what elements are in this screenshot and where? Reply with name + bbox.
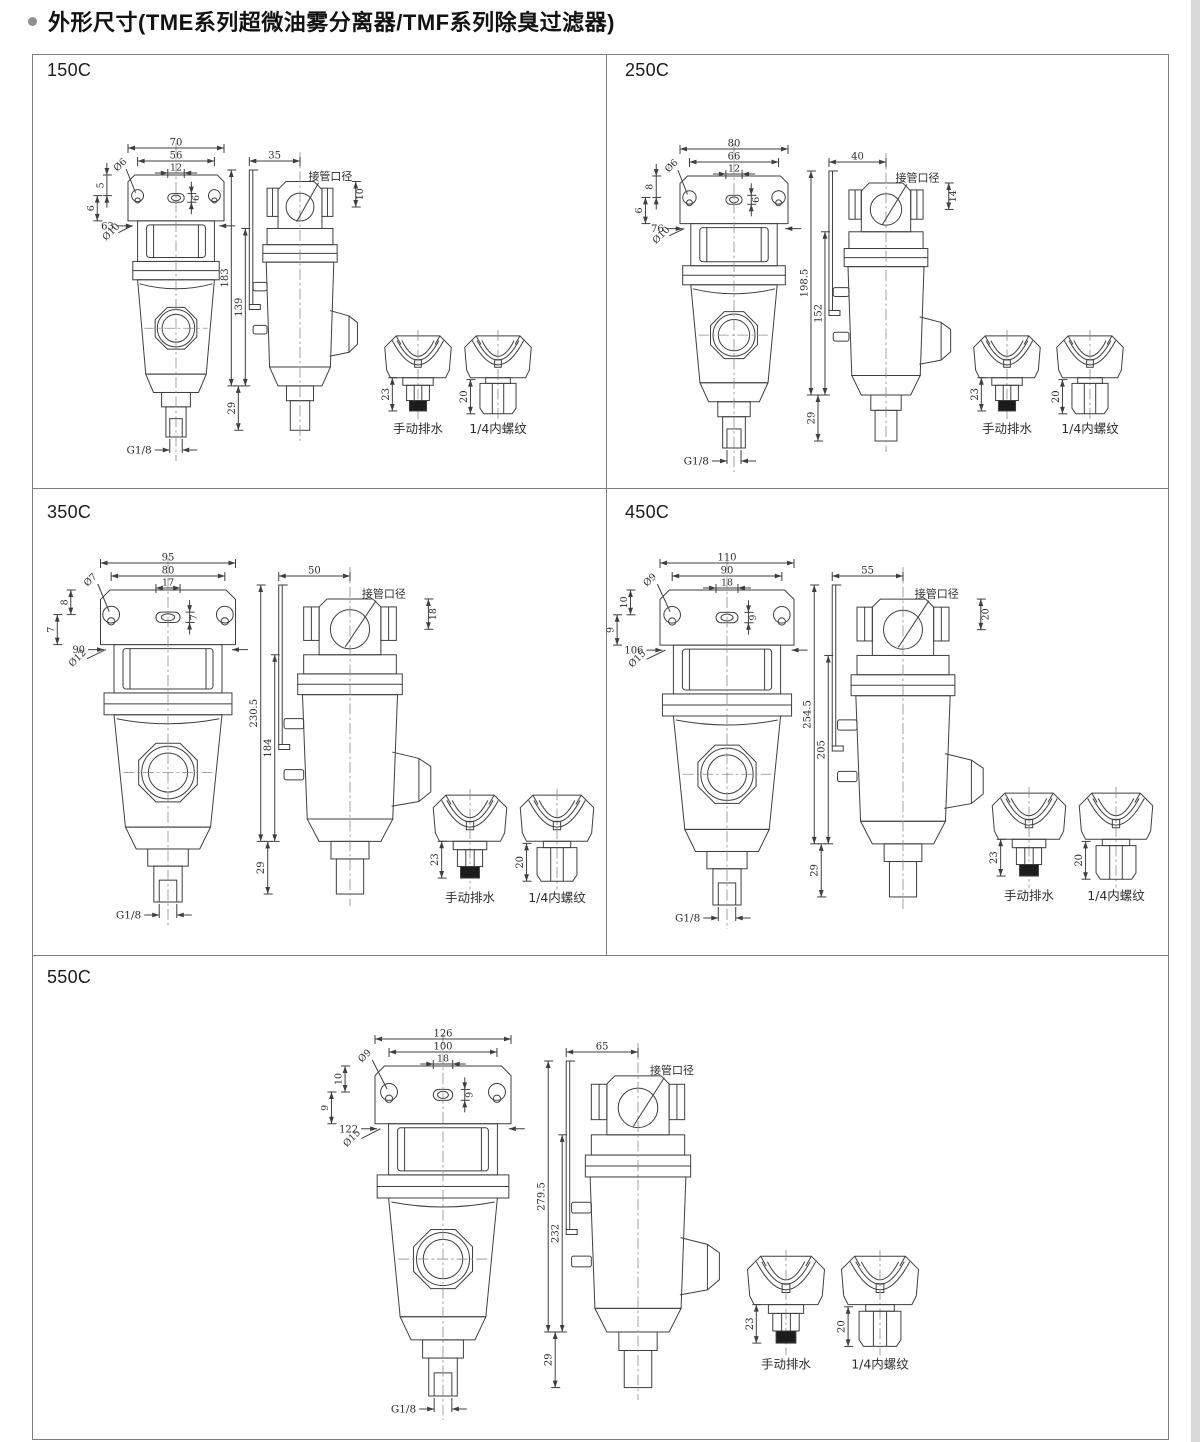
panel-label-350c: 350C (47, 502, 91, 523)
page-title: 外形尺寸(TME系列超微油雾分离器/TMF系列除臭过滤器) (48, 5, 615, 37)
panel-label-550c: 550C (47, 967, 91, 988)
grid-column-divider (606, 54, 607, 955)
drawing-grid-border (32, 54, 1169, 1440)
panel-label-150c: 150C (47, 60, 91, 81)
panel-label-450c: 450C (625, 502, 669, 523)
page: 外形尺寸(TME系列超微油雾分离器/TMF系列除臭过滤器) 150C 250C … (0, 0, 1200, 1442)
page-edge-shading (1191, 0, 1200, 1442)
page-title-row: 外形尺寸(TME系列超微油雾分离器/TMF系列除臭过滤器) (28, 4, 615, 38)
grid-row-divider-2 (32, 955, 1168, 956)
bullet-icon (28, 17, 37, 26)
panel-label-250c: 250C (625, 60, 669, 81)
grid-row-divider-1 (32, 488, 1168, 489)
